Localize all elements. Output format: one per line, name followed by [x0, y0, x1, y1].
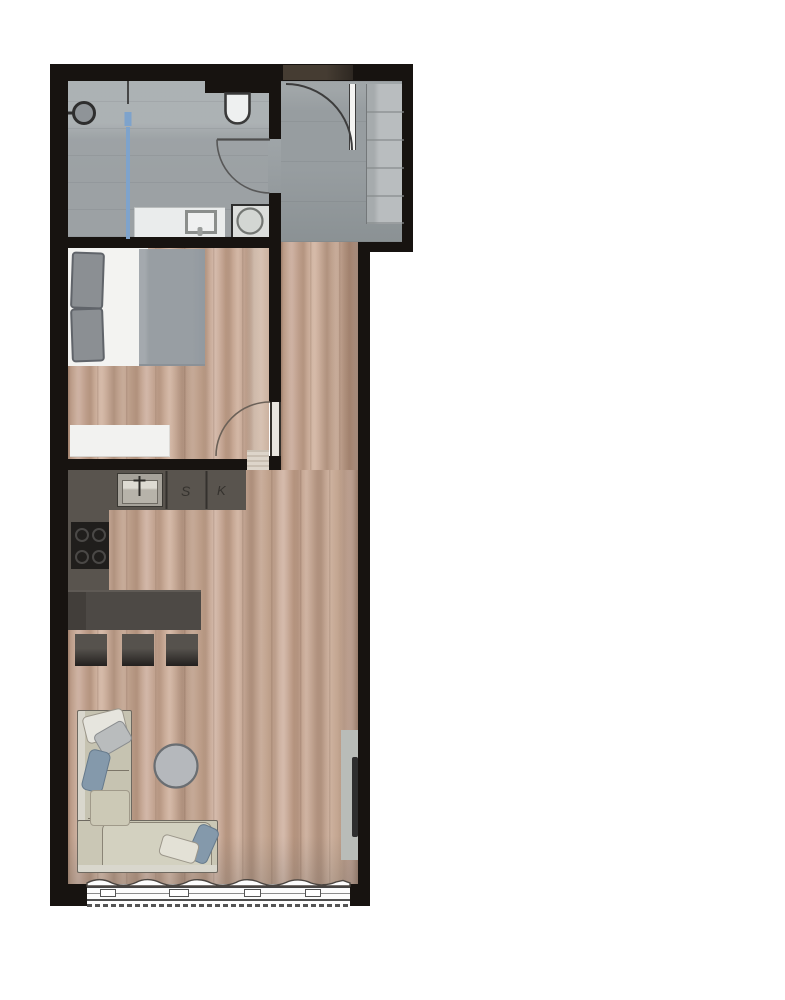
svg-text:K: K [217, 483, 227, 498]
svg-text:S: S [181, 483, 191, 499]
